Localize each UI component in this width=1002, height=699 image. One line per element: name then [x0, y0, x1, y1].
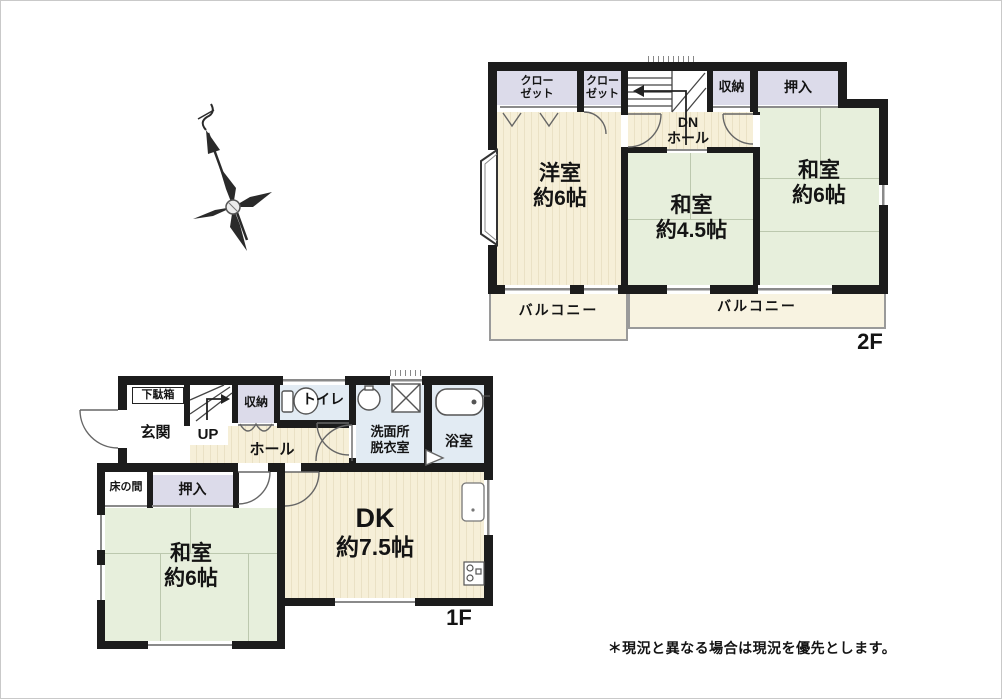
- disclaimer-note: ＊現況と異なる場合は現況を優先とします。: [597, 638, 907, 658]
- label-1f-oshiire: 押入: [152, 481, 233, 498]
- label-1f-toilet: トイレ: [297, 391, 349, 407]
- bathtub-icon: [436, 389, 490, 415]
- label-2f-floor: 2F: [848, 329, 892, 355]
- label-2f-balcony-left: バルコニー: [489, 301, 628, 319]
- label-1f-hall: ホール: [243, 441, 301, 459]
- label-2f-balcony-right: バルコニー: [628, 297, 886, 315]
- label-1f-entrance: 玄関: [127, 424, 184, 442]
- label-1f-washroom: 洗面所脱衣室: [358, 423, 422, 457]
- washing-machine-icon: [392, 384, 420, 412]
- floor-plan-canvas: クローゼット クローゼット 収納 押入 DNホール 洋室約6帖 和室約4.5帖 …: [0, 0, 1002, 699]
- label-2f-western-room: 洋室約6帖: [497, 158, 623, 214]
- label-1f-tatami: 和室約6帖: [105, 536, 277, 596]
- label-1f-floor: 1F: [437, 605, 481, 631]
- staircase-1f: [190, 385, 232, 421]
- label-2f-storage: 収納: [713, 79, 750, 95]
- label-1f-bathroom: 浴室: [438, 432, 480, 450]
- label-2f-closet-right: クローゼット: [584, 74, 621, 102]
- sink-icon: [358, 386, 380, 410]
- compass-icon: [193, 104, 272, 251]
- label-2f-closet-left: クローゼット: [500, 74, 574, 102]
- label-1f-storage: 収納: [238, 394, 274, 410]
- label-2f-dn-hall: DNホール: [628, 111, 748, 149]
- kitchen-sink-icon: [462, 483, 484, 521]
- label-2f-oshiire: 押入: [758, 79, 838, 95]
- label-2f-tatami-center: 和室約4.5帖: [628, 190, 755, 246]
- bay-window: [481, 150, 497, 245]
- label-1f-dk: DK 約7.5帖: [285, 500, 465, 566]
- label-2f-tatami-right: 和室約6帖: [760, 155, 878, 211]
- label-1f-tokonoma: 床の間: [104, 481, 148, 495]
- label-1f-shoe-cabinet: 下駄箱: [133, 388, 183, 403]
- stove-icon: [464, 562, 484, 585]
- label-1f-up: UP: [188, 426, 228, 443]
